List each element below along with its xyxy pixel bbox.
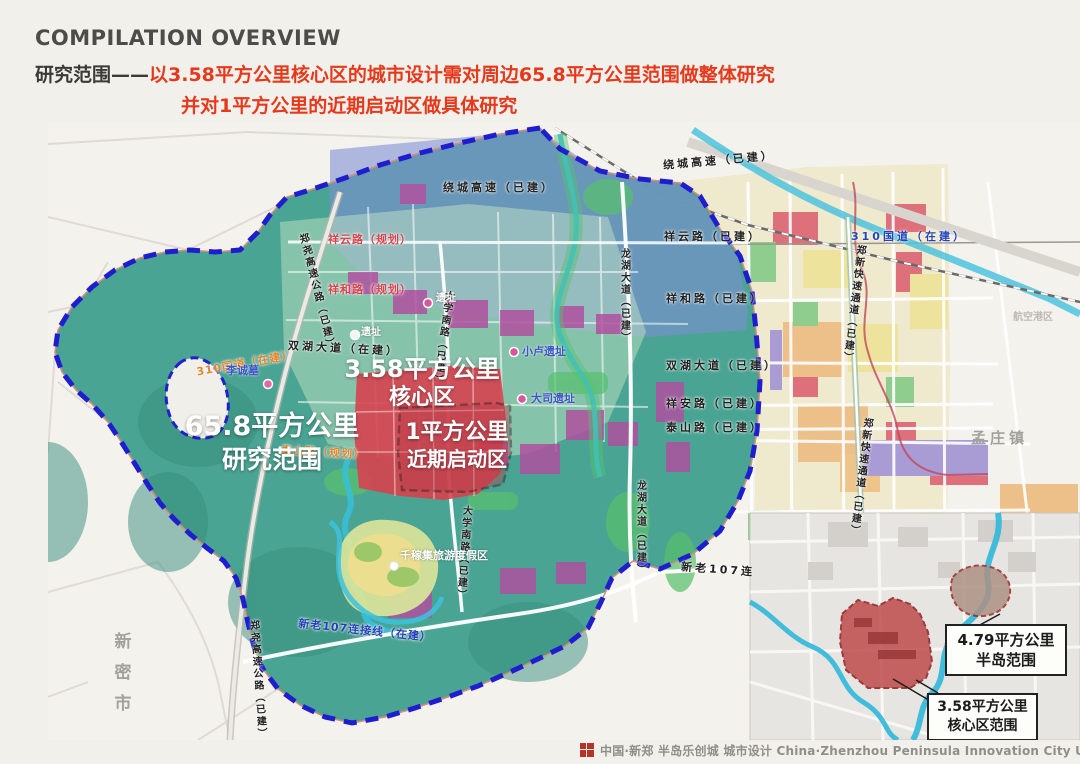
road-label-longhu-north: 龙湖大道（已建） [618,248,630,344]
project-caption: 中国·新郑 半岛乐创城 城市设计 China·Zhenzhou Peninsul… [600,742,1080,759]
place-label-xiaolu-ruins: 小卢遗址 [522,346,566,359]
inset-peninsula-value: 4.79平方公里 [947,630,1065,650]
subtitle-line2: 并对1平方公里的近期启动区做具体研究 [181,91,517,118]
slide-page: { "page": { "title": "COMPILATION OVERVI… [0,0,1080,764]
inset-peninsula-region [951,566,1010,617]
road-label-xiangyun-built: 祥云路（已建） [664,231,762,244]
road-label-longhu-south: 龙湖大道（已建） [634,480,646,576]
place-label-qianjiaji: 千稼集旅游度假区 [400,550,488,563]
startup-area-value: 1平方公里 [371,419,543,447]
place-label-xinmi: 新密市 [110,632,130,725]
inset-core-label: 3.58平方公里 核心区范围 [927,693,1038,740]
road-label-xiangyun-plan: 祥云路（规划） [328,234,412,247]
study-area-name: 研究范围 [152,444,392,475]
place-label-licheng-tomb: 李诚墓 [226,365,259,378]
inset-core-value: 3.58平方公里 [929,698,1036,717]
study-area-label: 65.8平方公里 研究范围 [152,410,392,475]
project-logo-icon [580,743,594,757]
core-area-name: 核心区 [320,384,524,412]
road-label-taishan-built: 泰山路（已建） [666,422,764,435]
page-title: COMPILATION OVERVIEW [35,26,341,50]
core-area-value: 3.58平方公里 [320,354,524,384]
place-label-dasi-ruins: 大司遗址 [531,393,575,406]
subtitle-red-text: 以3.58平方公里核心区的城市设计需对周边65.8平方公里范围做整体研究 [149,64,775,86]
road-label-shuanghu-built: 双湖大道（已建） [666,360,778,373]
road-label-raocheng-west: 绕城高速（已建） [443,182,555,195]
startup-area-name: 近期启动区 [371,447,543,472]
road-label-xianghe-built: 祥和路（已建） [666,293,764,306]
subtitle-line1: 研究范围——以3.58平方公里核心区的城市设计需对周边65.8平方公里范围做整体… [35,60,775,87]
place-label-ruins-a: 遗址 [436,293,456,305]
startup-area-label: 1平方公里 近期启动区 [371,419,543,472]
place-label-konggang: 航空港区 [1013,312,1053,324]
planning-map: 绕城高速（已建） 绕城高速（已建） 祥云路（规划） 祥和路（规划） 双湖大道（在… [48,122,1080,740]
subtitle-prefix: 研究范围—— [35,64,149,86]
place-label-mengzhuang: 孟庄镇 [971,430,1028,447]
road-label-g310-east: 310国道（在建） [851,231,967,244]
road-label-xianghe-plan: 祥和路（规划） [328,284,412,297]
study-area-value: 65.8平方公里 [152,410,392,444]
place-label-ruins-b: 遗址 [361,327,381,339]
inset-peninsula-name: 半岛范围 [947,650,1065,670]
inset-peninsula-label: 4.79平方公里 半岛范围 [945,624,1067,676]
core-area-label: 3.58平方公里 核心区 [320,354,524,412]
inset-core-name: 核心区范围 [929,717,1036,736]
road-label-xiangan-built: 祥安路（已建） [666,398,764,411]
